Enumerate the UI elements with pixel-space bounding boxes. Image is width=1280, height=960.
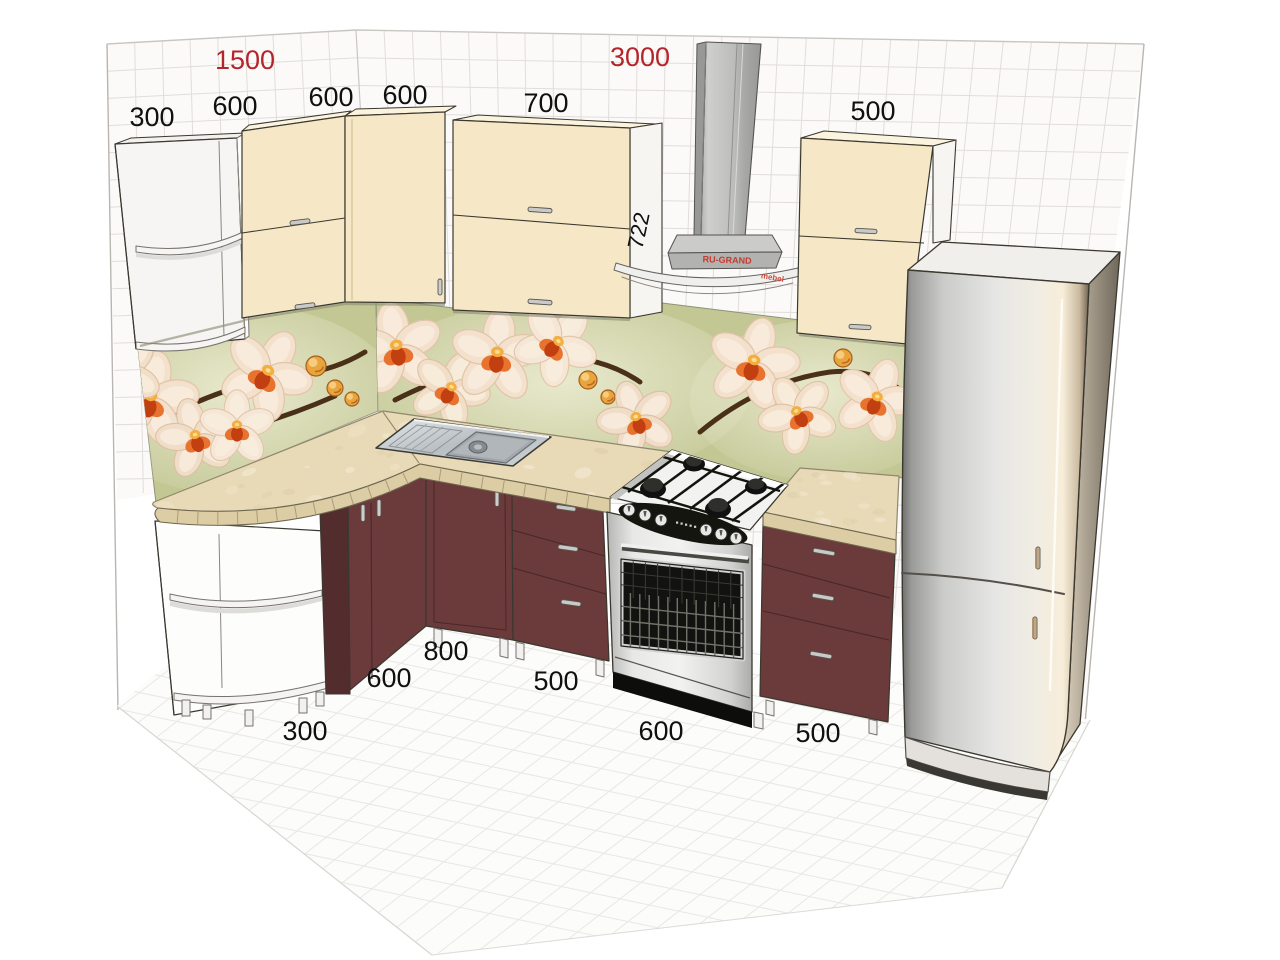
svg-text:600: 600 [382,80,427,110]
svg-text:500: 500 [795,718,840,748]
svg-text:300: 300 [129,102,174,132]
svg-text:500: 500 [850,96,895,126]
svg-text:300: 300 [282,716,327,746]
svg-text:RU-GRAND: RU-GRAND [702,254,752,266]
svg-text:600: 600 [308,82,353,112]
svg-text:700: 700 [523,88,568,118]
svg-text:500: 500 [533,666,578,696]
svg-text:600: 600 [638,716,683,746]
svg-text:1500: 1500 [215,45,275,75]
svg-text:3000: 3000 [610,42,670,72]
svg-text:600: 600 [366,663,411,693]
svg-text:600: 600 [212,91,257,121]
svg-text:800: 800 [423,636,468,666]
